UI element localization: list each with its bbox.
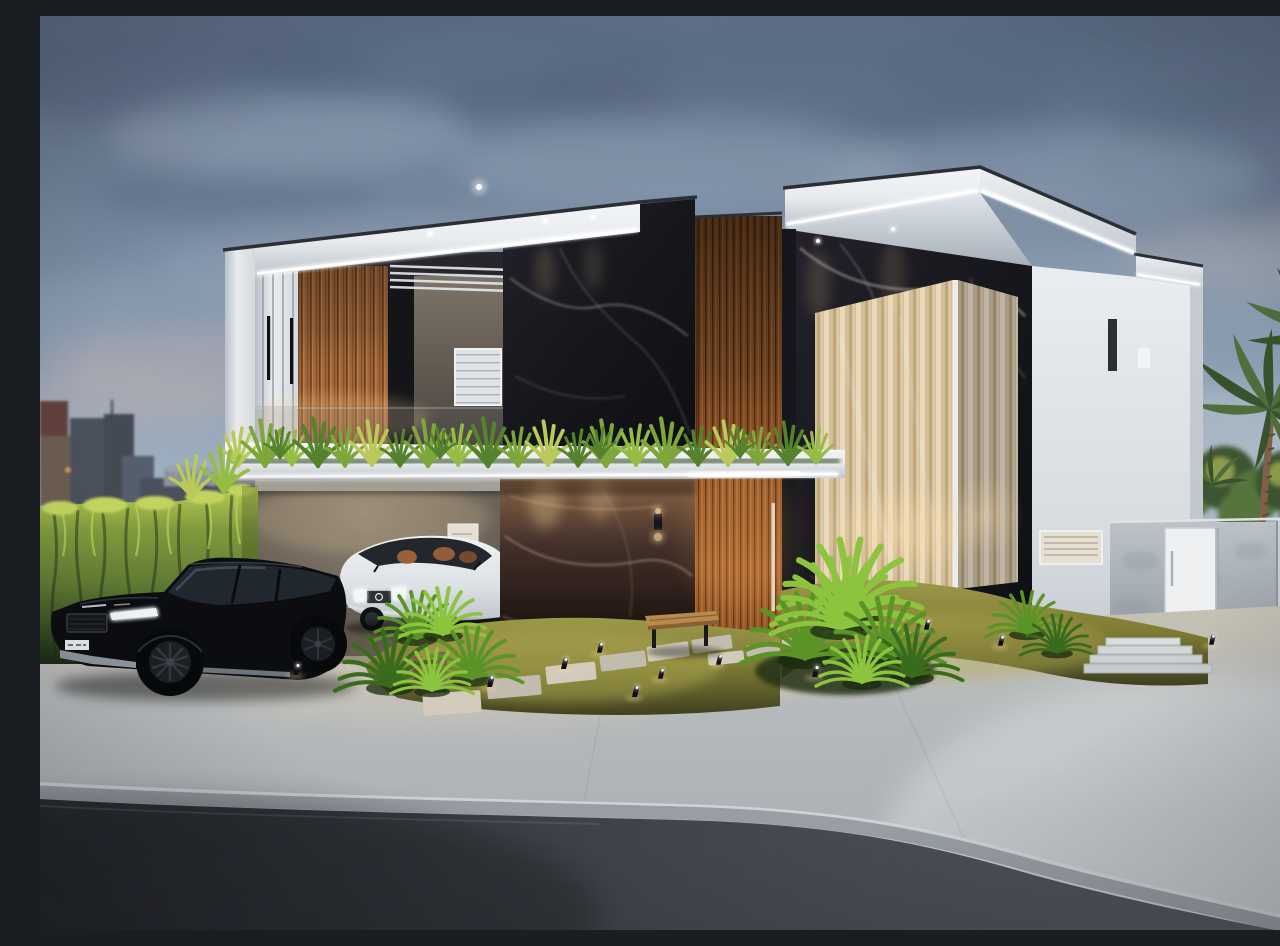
architectural-render [40,16,1280,930]
render-canvas [40,16,1280,930]
vignette [40,16,1280,930]
